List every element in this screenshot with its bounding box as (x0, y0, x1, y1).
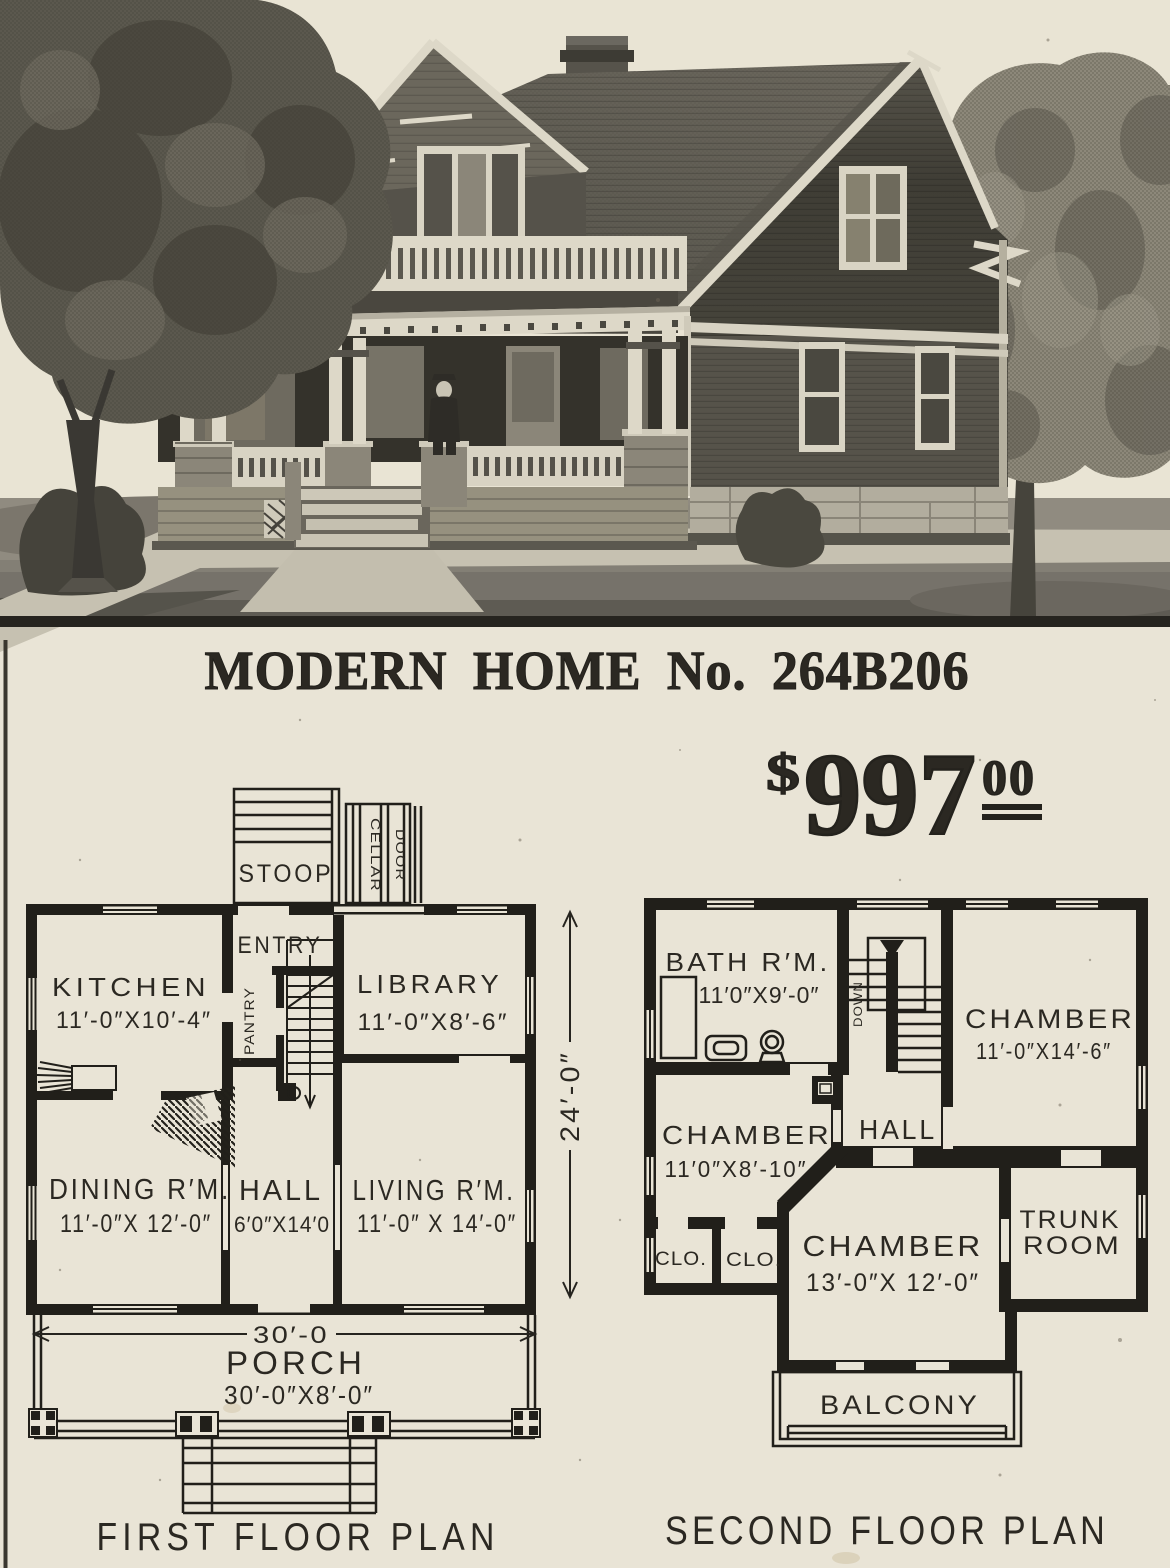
svg-text:BALCONY: BALCONY (820, 1390, 980, 1420)
svg-text:LIBRARY: LIBRARY (357, 969, 503, 999)
svg-text:DOWN: DOWN (851, 981, 865, 1027)
svg-text:11′0″X8′-10″: 11′0″X8′-10″ (665, 1156, 808, 1182)
svg-text:FIRST FLOOR PLAN: FIRST FLOOR PLAN (97, 1516, 500, 1559)
svg-text:11′-0″X10′-4″: 11′-0″X10′-4″ (56, 1007, 212, 1034)
svg-text:CHAMBER: CHAMBER (965, 1004, 1135, 1034)
svg-text:24′-0″: 24′-0″ (555, 1050, 585, 1142)
svg-text:11′-0″X 12′-0″: 11′-0″X 12′-0″ (60, 1210, 212, 1238)
svg-text:ENTRY: ENTRY (238, 932, 323, 959)
svg-text:PORCH: PORCH (226, 1345, 366, 1381)
svg-text:CLO.: CLO. (726, 1250, 782, 1271)
svg-text:11′-0″ X 14′-0″: 11′-0″ X 14′-0″ (357, 1210, 517, 1238)
svg-text:11′-0″X8′-6″: 11′-0″X8′-6″ (358, 1009, 509, 1036)
svg-text:11′-0″X14′-6″: 11′-0″X14′-6″ (976, 1038, 1112, 1064)
svg-text:KITCHEN: KITCHEN (52, 972, 210, 1002)
svg-text:HALL: HALL (239, 1175, 323, 1207)
svg-text:997: 997 (804, 729, 976, 860)
svg-text:PANTRY: PANTRY (241, 987, 257, 1055)
svg-text:LIVING R′M.: LIVING R′M. (353, 1175, 516, 1207)
svg-text:11′0″X9′-0″: 11′0″X9′-0″ (699, 982, 820, 1008)
svg-text:DOOR: DOOR (393, 829, 408, 881)
svg-text:30′-0″X8′-0″: 30′-0″X8′-0″ (224, 1380, 374, 1410)
svg-text:HALL: HALL (859, 1114, 937, 1145)
svg-text:CHAMBER: CHAMBER (803, 1231, 984, 1263)
svg-text:CLO.: CLO. (655, 1249, 707, 1270)
svg-text:DINING R′M.: DINING R′M. (49, 1174, 231, 1206)
svg-text:STOOP: STOOP (239, 860, 334, 888)
svg-text:$: $ (766, 745, 800, 802)
svg-text:CELLAR: CELLAR (368, 818, 383, 892)
svg-text:00: 00 (982, 749, 1036, 805)
svg-text:BATH R′M.: BATH R′M. (666, 947, 831, 977)
svg-text:SECOND FLOOR PLAN: SECOND FLOOR PLAN (665, 1509, 1109, 1553)
svg-text:ROOM: ROOM (1023, 1232, 1121, 1260)
svg-text:CHAMBER: CHAMBER (662, 1120, 832, 1150)
svg-text:6′0″X14′0: 6′0″X14′0 (234, 1212, 330, 1237)
svg-text:TRUNK: TRUNK (1020, 1206, 1121, 1234)
svg-text:MODERN HOME No. 264B206: MODERN HOME No. 264B206 (205, 640, 970, 701)
svg-text:13′-0″X 12′-0″: 13′-0″X 12′-0″ (806, 1269, 980, 1297)
